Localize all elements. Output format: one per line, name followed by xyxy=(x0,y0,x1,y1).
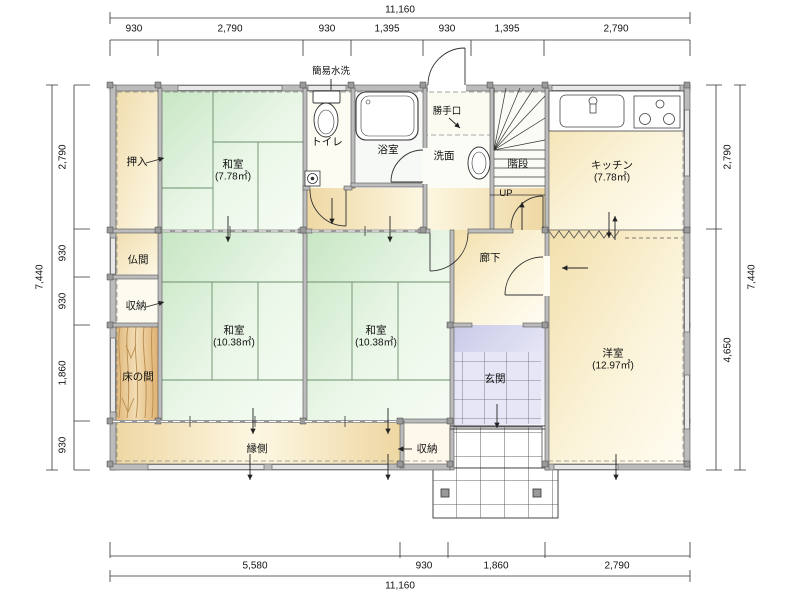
dim-left-seg: 2,790 xyxy=(58,144,69,169)
dim-top-seg: 930 xyxy=(126,24,143,35)
genkan-tile-grid xyxy=(452,352,541,424)
dim-left-seg: 930 xyxy=(58,437,69,454)
room-roka-fill xyxy=(450,230,545,325)
room-label-washitsu1: 和室 (7.78㎡) xyxy=(215,159,251,184)
label-toilet-note: 簡易水洗 xyxy=(312,66,350,78)
faucet-icon xyxy=(589,97,597,113)
window xyxy=(685,375,690,429)
label-stairs-up: UP xyxy=(499,188,512,200)
room-label-tokonoma: 床の間 xyxy=(122,371,154,383)
dim-left-seg: 930 xyxy=(58,293,69,310)
toilet-icon xyxy=(313,91,340,137)
room-label-roka: 廊下 xyxy=(480,252,501,264)
window xyxy=(685,110,690,176)
room-fills xyxy=(113,88,687,470)
room-label-butsuma: 仏間 xyxy=(128,254,149,266)
window xyxy=(272,465,388,470)
dim-bottom-seg: 930 xyxy=(416,561,433,572)
dim-top-seg: 2,790 xyxy=(603,24,628,35)
floor-plan-drawing xyxy=(0,0,800,600)
room-label-engawa: 縁側 xyxy=(247,443,268,455)
window xyxy=(148,465,264,470)
room-label-washitsu2: 和室 (10.38㎡) xyxy=(213,325,255,350)
porch-post xyxy=(533,489,541,497)
wash-basin-icon xyxy=(468,147,490,179)
dim-bottom-seg: 5,580 xyxy=(242,561,267,572)
dim-top-seg: 930 xyxy=(439,24,456,35)
door-opening xyxy=(544,256,550,296)
bath-door-opening xyxy=(422,148,428,184)
dim-top-seg: 2,790 xyxy=(217,24,242,35)
dim-right-total: 7,440 xyxy=(747,264,758,289)
window xyxy=(685,278,690,332)
dim-top-seg: 930 xyxy=(319,24,336,35)
dim-left-seg: 1,860 xyxy=(58,360,69,385)
dim-bottom-seg: 2,790 xyxy=(604,561,629,572)
room-label-yoshitsu: 洋室 (12.97㎡) xyxy=(592,348,634,373)
room-label-washitsu3: 和室 (10.38㎡) xyxy=(355,325,397,350)
window xyxy=(552,86,680,91)
room-label-kitchen: キッチン (7.78㎡) xyxy=(591,160,633,185)
hand-basin-icon xyxy=(305,171,320,186)
dim-top-seg: 1,395 xyxy=(374,24,399,35)
dim-right-seg: 2,790 xyxy=(723,144,734,169)
floor-plan-canvas: 11,160 930 2,790 930 1,395 930 1,395 2,7… xyxy=(0,0,800,600)
dim-left-seg: 930 xyxy=(58,245,69,262)
room-label-shuno-bottom: 収納 xyxy=(417,443,438,455)
back-door-swing xyxy=(428,48,465,85)
room-label-genkan: 玄関 xyxy=(485,373,506,385)
room-label-oshiire: 押入 xyxy=(127,156,148,168)
room-label-senmen: 洗面 xyxy=(434,150,455,162)
dim-left-total: 7,440 xyxy=(35,264,46,289)
window xyxy=(554,465,618,470)
room-label-kaidan: 階段 xyxy=(508,158,529,170)
window xyxy=(111,338,116,412)
dim-bottom-seg: 1,860 xyxy=(483,561,508,572)
window xyxy=(178,86,282,91)
room-label-katteguchi: 勝手口 xyxy=(433,106,462,118)
room-label-toilet: トイレ xyxy=(311,136,343,148)
dim-right-seg: 4,650 xyxy=(723,337,734,362)
room-label-shuno-left: 収納 xyxy=(126,300,147,312)
kitchen-counter xyxy=(549,91,684,131)
porch-post xyxy=(441,489,449,497)
window xyxy=(308,86,346,91)
backdoor-opening xyxy=(428,85,466,92)
room-label-bath: 浴室 xyxy=(378,144,399,156)
bathtub-icon xyxy=(356,92,418,140)
dim-top-total: 11,160 xyxy=(385,5,415,16)
dim-top-seg: 1,395 xyxy=(494,24,519,35)
stove-icon xyxy=(634,96,680,128)
window xyxy=(111,238,116,274)
dim-bottom-total: 11,160 xyxy=(385,581,415,592)
